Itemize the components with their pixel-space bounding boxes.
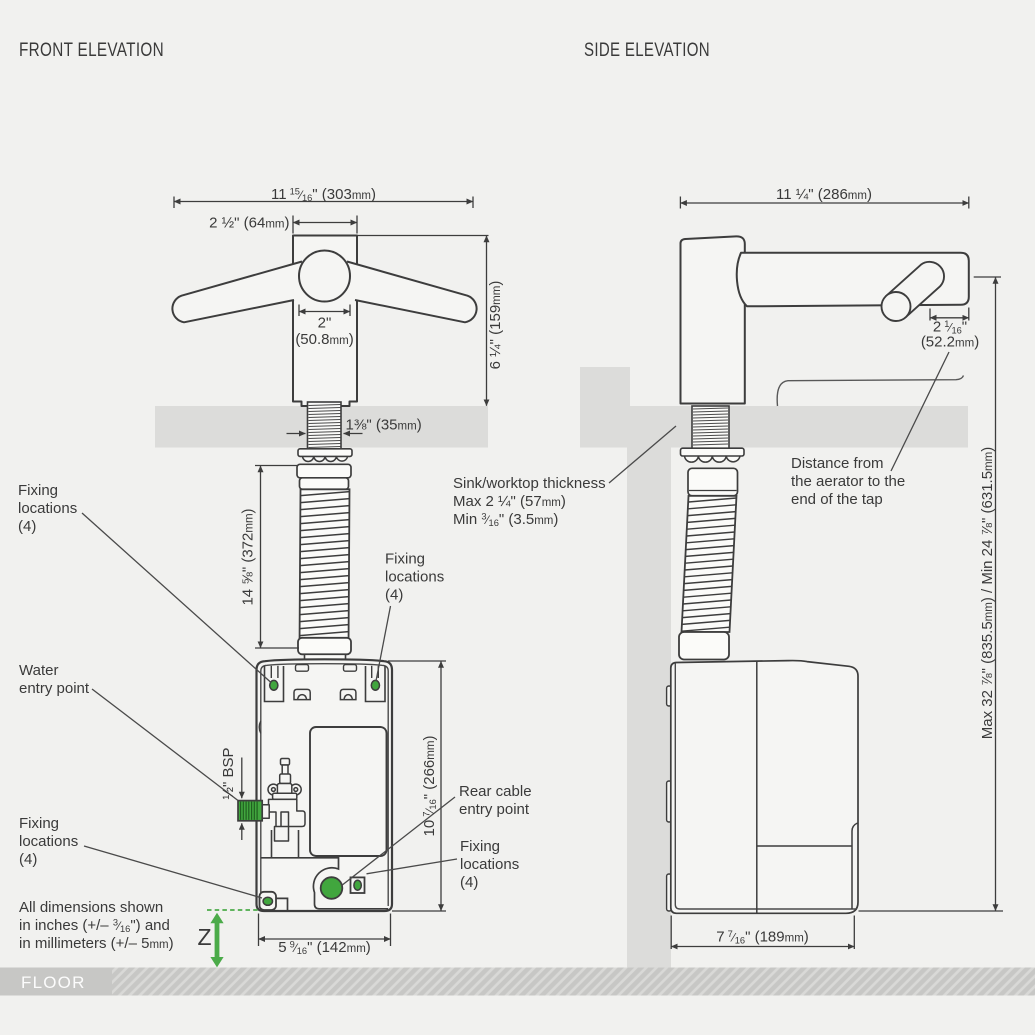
svg-text:entry point: entry point	[19, 680, 90, 697]
svg-text:2": 2"	[318, 315, 332, 332]
svg-text:Fixing: Fixing	[460, 838, 500, 855]
svg-text:locations: locations	[385, 569, 444, 586]
svg-text:locations: locations	[19, 833, 78, 850]
svg-text:entry point: entry point	[459, 801, 530, 818]
svg-text:end of the tap: end of the tap	[791, 491, 883, 508]
svg-text:Water: Water	[19, 662, 58, 679]
svg-text:(4): (4)	[460, 874, 478, 891]
svg-text:Sink/worktop thickness: Sink/worktop thickness	[453, 475, 606, 492]
svg-text:Z: Z	[198, 924, 212, 950]
svg-text:Distance from: Distance from	[791, 455, 884, 472]
svg-text:locations: locations	[18, 500, 77, 517]
svg-text:(4): (4)	[18, 518, 36, 535]
svg-text:SIDE ELEVATION: SIDE ELEVATION	[584, 40, 710, 61]
svg-text:FRONT ELEVATION: FRONT ELEVATION	[19, 40, 164, 61]
svg-text:Fixing: Fixing	[18, 482, 58, 499]
svg-text:Rear cable: Rear cable	[459, 783, 532, 800]
svg-text:the aerator to the: the aerator to the	[791, 473, 905, 490]
svg-text:(4): (4)	[19, 851, 37, 868]
svg-text:in inches (+/– 3⁄16​") and: in inches (+/– 3⁄16​") and	[19, 917, 170, 934]
svg-text:(4): (4)	[385, 587, 403, 604]
svg-text:All dimensions shown: All dimensions shown	[19, 899, 163, 916]
svg-text:Fixing: Fixing	[385, 551, 425, 568]
svg-text:locations: locations	[460, 856, 519, 873]
svg-text:FLOOR: FLOOR	[21, 973, 86, 992]
svg-text:Max 32 ⅞" (835.5mm) / Min 24 ⅞: Max 32 ⅞" (835.5mm) / Min 24 ⅞" (631.5mm…	[979, 447, 996, 739]
svg-text:Fixing: Fixing	[19, 815, 59, 832]
svg-text:½" BSP: ½" BSP	[220, 747, 237, 799]
